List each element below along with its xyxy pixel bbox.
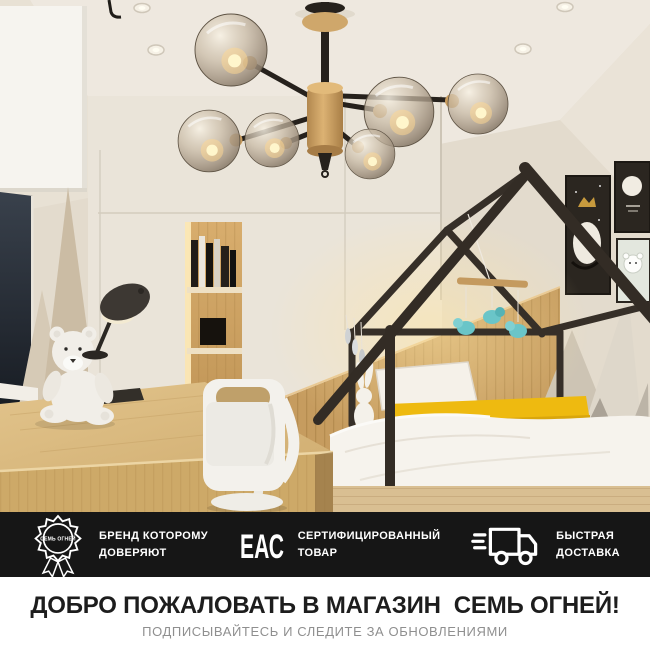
badge-label-line: ТОВАР (298, 545, 441, 562)
badge-fast-delivery: БЫСТРАЯ ДОСТАВКА (471, 520, 620, 570)
wood-cylinder (307, 86, 343, 152)
badge-label: БРЕНД КОТОРОМУ ДОВЕРЯЮТ (99, 528, 208, 561)
poster-moon (615, 162, 650, 232)
badge-label-line: БЫСТРАЯ (556, 528, 620, 545)
badge-brand-trust: СЕМЬ ОГНЕЙ БРЕНД КОТОРОМУ ДОВЕРЯЮТ (30, 513, 208, 577)
badge-label-line: ДОСТАВКА (556, 545, 620, 562)
room-photo (0, 0, 650, 512)
delivery-truck-icon (471, 520, 543, 570)
eac-mark-icon: ЕАС (239, 524, 285, 566)
promo-image: СЕМЬ ОГНЕЙ БРЕНД КОТОРОМУ ДОВЕРЯЮТ ЕАС С… (0, 0, 650, 650)
badge-certified: ЕАС СЕРТИФИЦИРОВАННЫЙ ТОВАР (239, 524, 441, 566)
brand-seal-icon: СЕМЬ ОГНЕЙ (30, 513, 86, 577)
room-photo-svg (0, 0, 650, 512)
eac-mark-text: ЕАС (240, 528, 284, 566)
subscribe-subtitle: ПОДПИСЫВАЙТЕСЬ И СЛЕДИТЕ ЗА ОБНОВЛЕНИЯМИ (0, 624, 650, 639)
black-box (200, 318, 226, 345)
badge-bar: СЕМЬ ОГНЕЙ БРЕНД КОТОРОМУ ДОВЕРЯЮТ ЕАС С… (0, 512, 650, 577)
blind-edge-shadow (82, 6, 87, 192)
window-blind (0, 6, 87, 192)
seal-text: СЕМЬ ОГНЕЙ (40, 534, 76, 542)
badge-label-line: БРЕНД КОТОРОМУ (99, 528, 208, 545)
welcome-title: ДОБРО ПОЖАЛОВАТЬ В МАГАЗИН СЕМЬ ОГНЕЙ! (0, 592, 650, 620)
badge-label-line: СЕРТИФИЦИРОВАННЫЙ (298, 528, 441, 545)
blind-bottom-bar (0, 188, 87, 192)
badge-label-line: ДОВЕРЯЮТ (99, 545, 208, 562)
badge-label: СЕРТИФИЦИРОВАННЫЙ ТОВАР (298, 528, 441, 561)
badge-label: БЫСТРАЯ ДОСТАВКА (556, 528, 620, 561)
footer: ДОБРО ПОЖАЛОВАТЬ В МАГАЗИН СЕМЬ ОГНЕЙ! П… (0, 577, 650, 650)
